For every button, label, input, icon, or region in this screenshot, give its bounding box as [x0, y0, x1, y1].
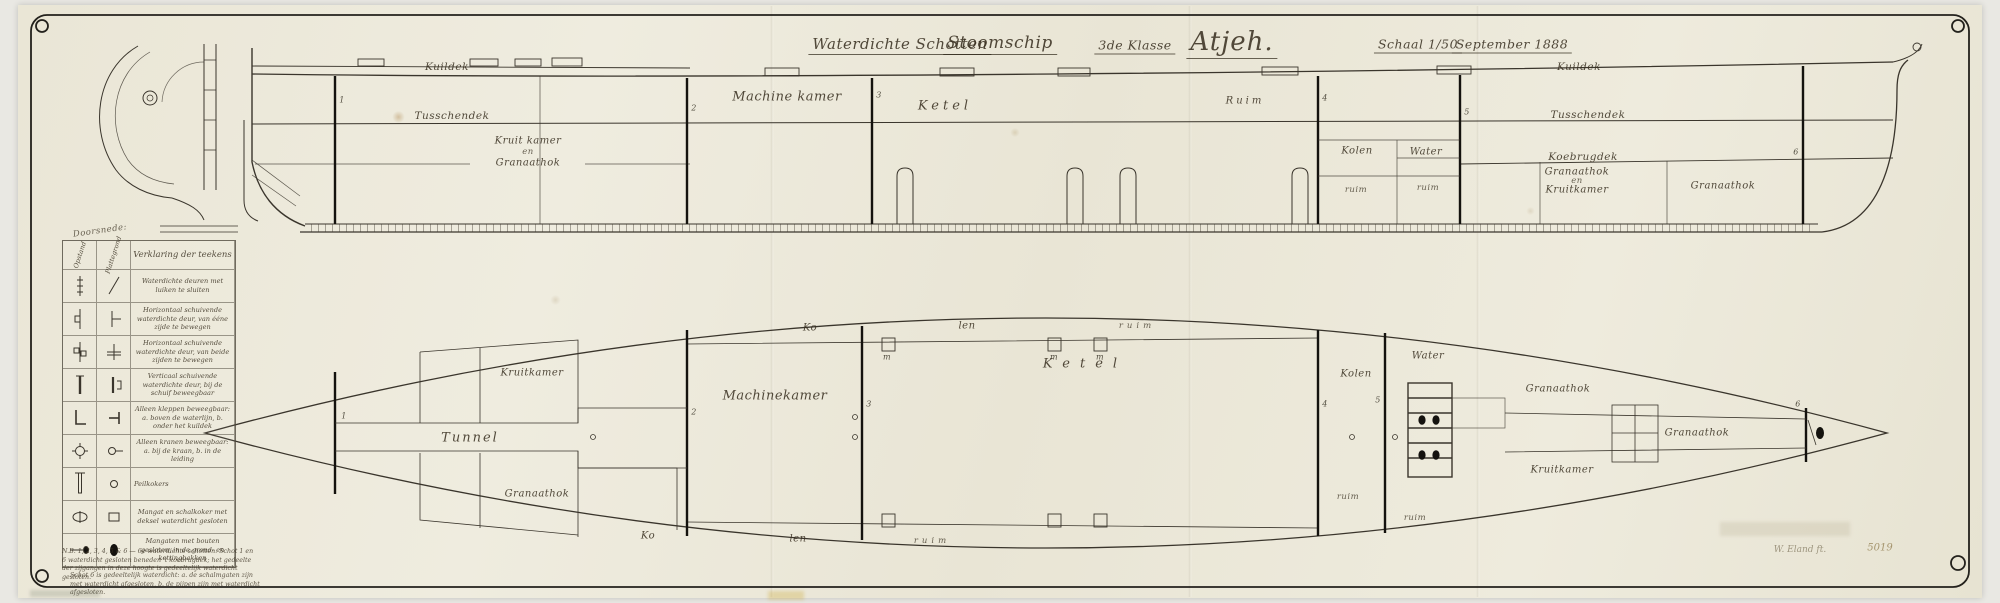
- sounding-tube-section-icon: [65, 470, 95, 498]
- cock-valve-plan-icon: [99, 439, 129, 463]
- legend-symbol-section-8: [63, 501, 97, 534]
- profile-kruitkamer-line2: en: [522, 147, 534, 157]
- legend-symbol-plan-7: [97, 468, 131, 501]
- legend-symbol-plan-3: [97, 336, 131, 369]
- legend-col-plan-label: Plattegrond: [104, 235, 124, 275]
- flap-valve-plan-icon: [99, 406, 129, 430]
- sliding-door-one-side-section-icon: [65, 307, 95, 331]
- water-tank-grid: [1408, 383, 1452, 477]
- legend-row-text: Waterdichte deuren met luiken te sluiten: [131, 270, 235, 303]
- sliding-door-two-sides-section-icon: [65, 340, 95, 364]
- flap-valve-section-icon: [65, 406, 95, 430]
- door-hinged-plan-icon: [99, 274, 129, 298]
- plan-ruim-small-2: ruim: [1404, 513, 1426, 523]
- title-stoomschip: Stoomschip: [943, 33, 1057, 55]
- plan-bulkhead-4-number: 4: [1322, 400, 1328, 409]
- draughtsman-signature: W. Eland ft.: [1774, 545, 1826, 555]
- plan-kolen-bottom-ko: Ko: [641, 531, 655, 542]
- legend-table: Opstand Plattegrond Verklaring der teeke…: [62, 240, 236, 568]
- legend-symbol-plan-6: [97, 435, 131, 468]
- profile-kuildek-fore: Kuildek: [1557, 61, 1601, 73]
- manhole-cover-section-icon: [65, 503, 95, 531]
- legend-row-text: Mangat en schalkoker met deksel waterdic…: [131, 501, 235, 534]
- plan-ruim-bottom: ruim: [914, 536, 950, 546]
- plan-kolen-fore: Kolen: [1340, 369, 1371, 380]
- manhole-cover-plan-icon: [99, 503, 129, 531]
- profile-kuildek-aft: Kuildek: [425, 61, 469, 73]
- plan-hatch-mark-1: m: [883, 353, 891, 362]
- legend-symbol-section-2: [63, 303, 97, 336]
- profile-ketel: Ketel: [918, 99, 972, 114]
- sounding-tube-plan-icon: [99, 470, 129, 498]
- legend-symbol-section-7: [63, 468, 97, 501]
- profile-bulkhead-4-number: 4: [1322, 94, 1328, 103]
- legend-symbol-plan-1: [97, 270, 131, 303]
- profile-tusschendek-aft: Tusschendek: [415, 110, 490, 122]
- profile-bulkhead-3-number: 3: [876, 91, 882, 100]
- drawing-number: 5019: [1867, 543, 1892, 554]
- legend-symbol-section-5: [63, 402, 97, 435]
- legend-symbol-plan-2: [97, 303, 131, 336]
- title-ship-name: Atjeh.: [1186, 27, 1277, 59]
- cock-valve-section-icon: [65, 439, 95, 463]
- stern-detail-drawing: [100, 44, 238, 232]
- vertical-sliding-door-plan-icon: [99, 373, 129, 397]
- profile-bulkhead-2-number: 2: [691, 104, 697, 113]
- legend-col-section-header: Opstand: [63, 241, 97, 270]
- legend-symbol-plan-5: [97, 402, 131, 435]
- legend-footnote-2: Schot 6 is gedeeltelijk waterdicht: a. d…: [70, 572, 266, 598]
- legend-symbol-plan-8: [97, 501, 131, 534]
- plan-kruitkamer-aft: Kruitkamer: [500, 368, 563, 379]
- title-date: September 1888: [1452, 37, 1572, 54]
- plan-bulkhead-1-number: 1: [341, 412, 347, 421]
- plan-kolen-bottom-len: len: [789, 534, 806, 545]
- plan-bulkhead-3-number: 3: [866, 400, 872, 409]
- plan-granaathok-bow: Granaathok: [1665, 428, 1730, 439]
- profile-kolen: Kolen: [1341, 146, 1372, 157]
- drawing-linework: [0, 0, 2000, 603]
- plan-hatch-mark-3: m: [1096, 353, 1104, 362]
- plan-bulkhead-5-number: 5: [1375, 396, 1381, 405]
- plan-bulkhead-2-number: 2: [691, 408, 697, 417]
- sliding-door-one-side-plan-icon: [99, 307, 129, 331]
- profile-kruitkamer-line3: Granaathok: [496, 158, 561, 169]
- plan-bulkhead-6-number: 6: [1795, 400, 1801, 409]
- legend-row-text: Horizontaal schuivende waterdichte deur,…: [131, 303, 235, 336]
- legend-row-text: Alleen kranen beweegbaar: a. bij de kraa…: [131, 435, 235, 468]
- boiler-doors: [897, 168, 1308, 224]
- legend-symbol-section-4: [63, 369, 97, 402]
- plan-granaathok-aft: Granaathok: [505, 489, 570, 500]
- legend-symbol-section-1: [63, 270, 97, 303]
- plan-ruim-small-1: ruim: [1337, 492, 1359, 502]
- plan-ruim-top: ruim: [1119, 321, 1155, 331]
- profile-ruim-small-1: ruim: [1345, 185, 1367, 195]
- profile-water: Water: [1410, 147, 1443, 158]
- plan-machinekamer: Machinekamer: [723, 389, 828, 404]
- plan-water: Water: [1412, 351, 1445, 362]
- legend-col-section-label: Opstand: [71, 241, 87, 270]
- legend-symbol-section-6: [63, 435, 97, 468]
- profile-bulkhead-1-number: 1: [339, 96, 345, 105]
- legend-row-text: Alleen kleppen beweegbaar: a. boven de w…: [131, 402, 235, 435]
- profile-ruim-small-2: ruim: [1417, 183, 1439, 193]
- legend-row-text: Verticaal schuivende waterdichte deur, b…: [131, 369, 235, 402]
- plan-kolen-top-ko: Ko: [803, 323, 817, 334]
- profile-granaathok-line3: Kruitkamer: [1545, 185, 1608, 196]
- sliding-door-two-sides-plan-icon: [99, 340, 129, 364]
- profile-ruim: Ruim: [1226, 96, 1265, 107]
- legend-symbol-section-3: [63, 336, 97, 369]
- door-hinged-section-icon: [65, 274, 95, 298]
- legend-symbol-plan-4: [97, 369, 131, 402]
- plan-kruitkamer-fore: Kruitkamer: [1530, 465, 1593, 476]
- sheet-border: [31, 15, 1969, 587]
- profile-koebrugdek: Koebrugdek: [1548, 151, 1618, 163]
- scanned-ship-plan: Waterdichte Schotten Stoomschip 3de Klas…: [0, 0, 2000, 603]
- title-klasse: 3de Klasse: [1094, 38, 1175, 55]
- profile-granaathok-fore: Granaathok: [1691, 181, 1756, 192]
- vertical-sliding-door-section-icon: [65, 373, 95, 397]
- plan-hatch-mark-2: m: [1050, 353, 1058, 362]
- profile-kruitkamer-line1: Kruit kamer: [495, 136, 562, 147]
- profile-tusschendek-fore: Tusschendek: [1551, 109, 1626, 121]
- legend-row-text: Horizontaal schuivende waterdichte deur,…: [131, 336, 235, 369]
- profile-bulkhead-6-number: 6: [1793, 148, 1799, 157]
- profile-machinekamer: Machine kamer: [732, 90, 841, 105]
- title-scale: Schaal 1/50: [1374, 37, 1462, 54]
- plan-granaathok-fore-upper: Granaathok: [1526, 384, 1591, 395]
- legend-col-plan-header: Plattegrond: [97, 241, 131, 270]
- legend-row-text: Peilkokers: [131, 468, 235, 501]
- plan-tunnel: Tunnel: [441, 431, 499, 446]
- legend-title: Verklaring der teekens: [131, 241, 235, 270]
- profile-bulkhead-5-number: 5: [1464, 108, 1470, 117]
- plan-kolen-top-len: len: [958, 321, 975, 332]
